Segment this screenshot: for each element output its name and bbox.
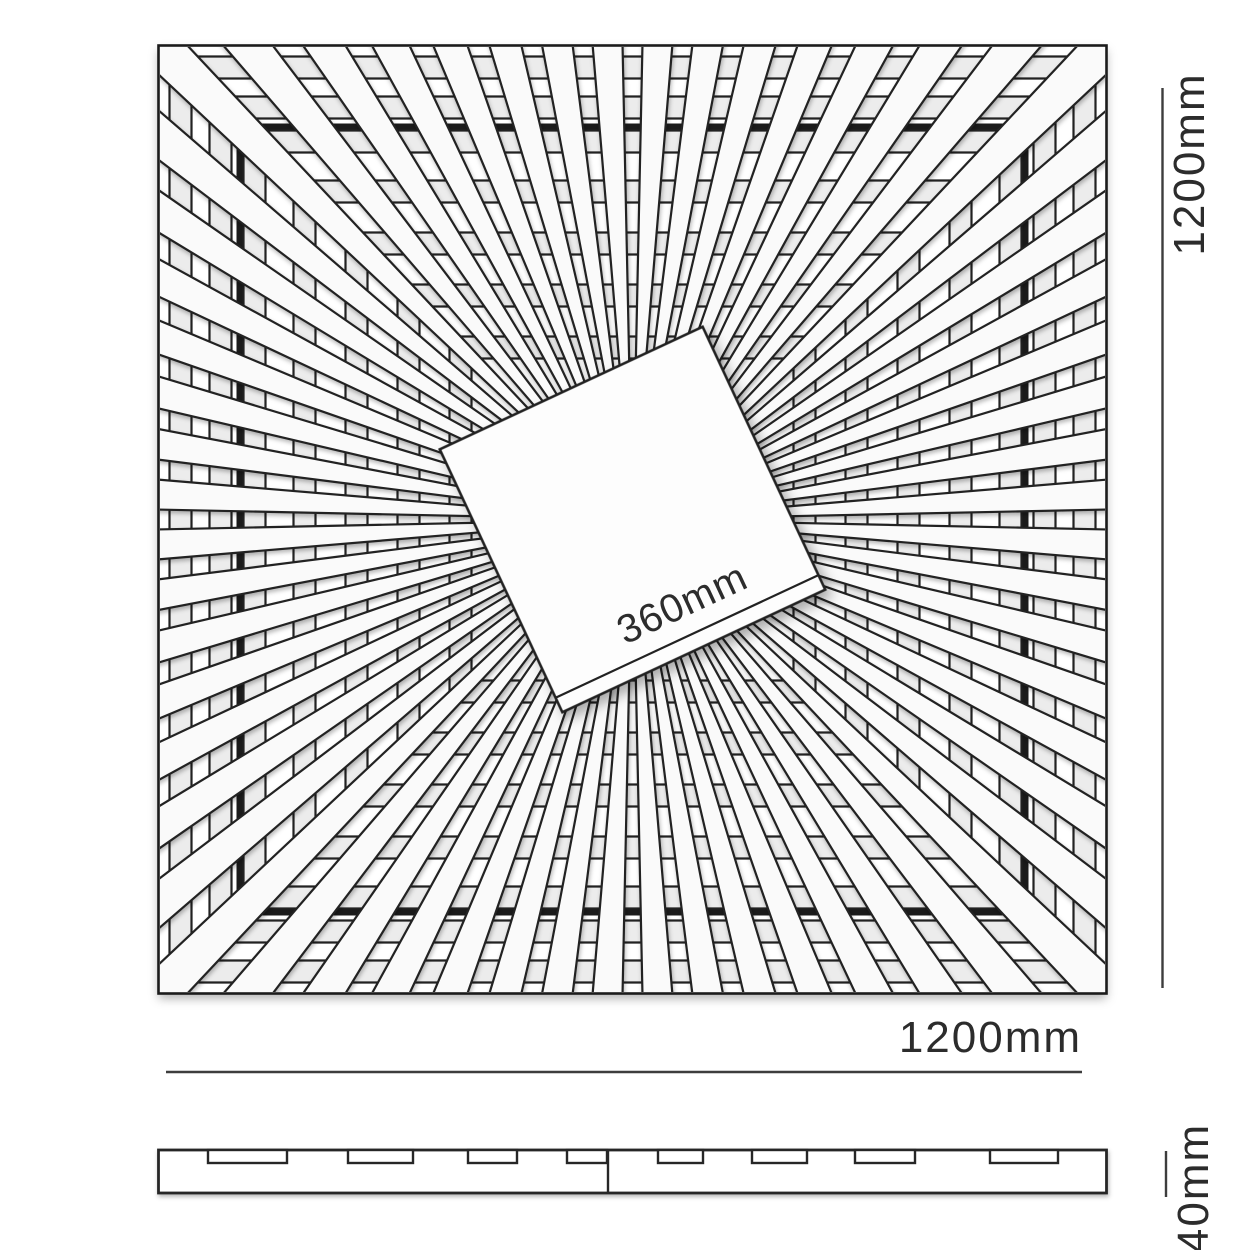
profile-groove [658,1150,703,1163]
profile-view [159,1150,1107,1193]
profile-groove [855,1150,915,1163]
profile-groove [752,1150,807,1163]
profile-groove [468,1150,517,1163]
dimension-drawing-page: 360mm 1200mm 1200mm 40mm [0,0,1250,1250]
height-dimension-label: 1200mm [1160,54,1220,274]
profile-groove [990,1150,1058,1163]
profile-groove [208,1150,287,1163]
width-dimension-label: 1200mm [862,1008,1082,1068]
thickness-dimension-label: 40mm [1164,1078,1224,1250]
profile-body [159,1150,1107,1193]
profile-groove [567,1150,607,1163]
profile-groove [348,1150,413,1163]
